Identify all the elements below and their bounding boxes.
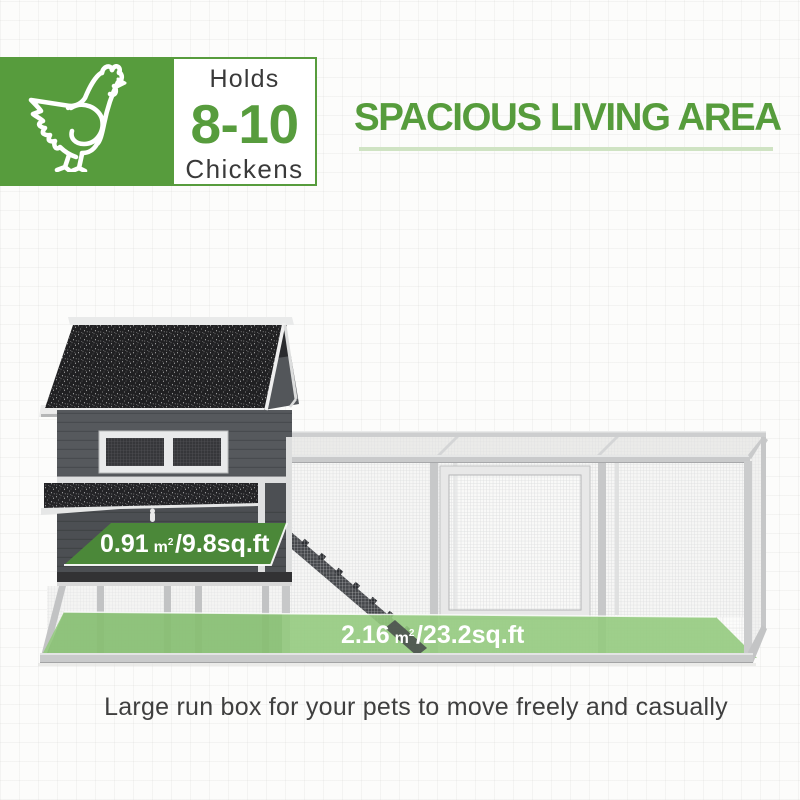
svg-text:0.91m2/9.8sq.ft: 0.91m2/9.8sq.ft — [100, 530, 270, 558]
svg-text:2.16m2/23.2sq.ft: 2.16m2/23.2sq.ft — [341, 621, 525, 649]
